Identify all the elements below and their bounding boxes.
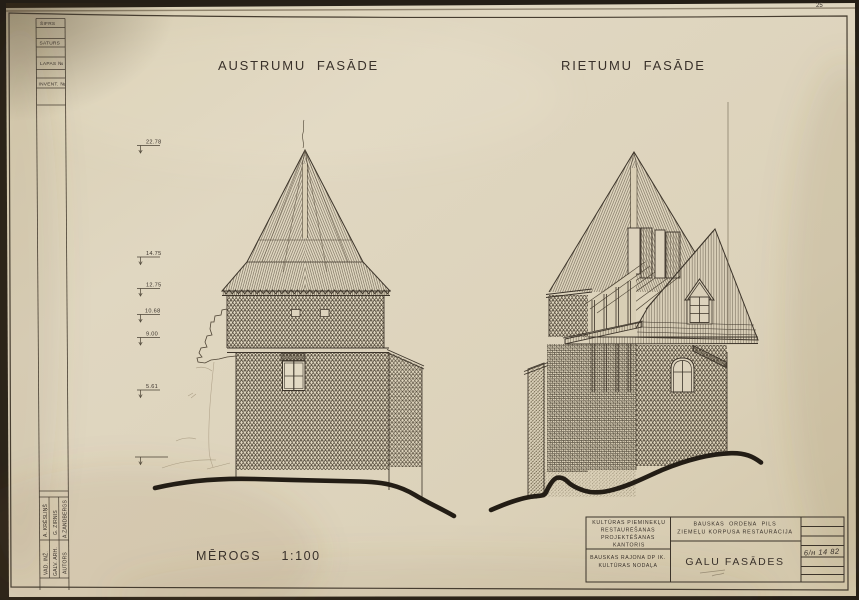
svg-text:KULTŪRAS NODAĻA: KULTŪRAS NODAĻA <box>598 562 657 569</box>
svg-text:ŠIFRS: ŠIFRS <box>40 20 55 27</box>
svg-text:RESTAURĒŠANAS: RESTAURĒŠANAS <box>601 527 656 534</box>
svg-text:BAUSKAS RAJONA DP IK.: BAUSKAS RAJONA DP IK. <box>590 555 666 561</box>
svg-text:AUTORS: AUTORS <box>63 552 69 574</box>
svg-text:VAD. INŽ.: VAD. INŽ. <box>42 551 50 575</box>
svg-text:MĒROGS 1:100: MĒROGS 1:100 <box>196 549 321 563</box>
svg-text:12.75: 12.75 <box>146 283 162 289</box>
svg-text:RIETUMU FASĀDE: RIETUMU FASĀDE <box>561 58 706 73</box>
svg-text:GALV. ARH.: GALV. ARH. <box>53 547 59 576</box>
svg-text:5.61: 5.61 <box>146 384 158 390</box>
svg-text:KANTORIS: KANTORIS <box>613 543 645 549</box>
svg-text:KULTŪRAS PIEMINEKĻU: KULTŪRAS PIEMINEKĻU <box>592 519 665 526</box>
svg-text:AUSTRUMU FASĀDE: AUSTRUMU FASĀDE <box>218 58 379 73</box>
svg-text:G. ZIRNIS: G. ZIRNIS <box>53 510 59 535</box>
svg-text:10.68: 10.68 <box>145 309 161 315</box>
svg-text:14.75: 14.75 <box>146 251 162 257</box>
svg-text:LAPAS №: LAPAS № <box>40 61 63 67</box>
svg-text:A.ZANDBERGS: A.ZANDBERGS <box>62 499 68 538</box>
svg-text:25: 25 <box>816 3 823 9</box>
svg-text:GALU FASĀDES: GALU FASĀDES <box>685 556 784 568</box>
svg-text:ZIEMEĻU KORPUSA RESTAURĀCIJA: ZIEMEĻU KORPUSA RESTAURĀCIJA <box>677 529 792 536</box>
svg-text:INVENT. №: INVENT. № <box>39 82 66 88</box>
svg-text:BAUSKAS ORDEŅA PILS: BAUSKAS ORDEŅA PILS <box>693 522 776 528</box>
svg-text:SATURS: SATURS <box>40 41 61 47</box>
svg-text:9.00: 9.00 <box>146 332 158 338</box>
svg-text:PROJEKTĒŠANAS: PROJEKTĒŠANAS <box>601 534 655 541</box>
svg-text:A. KRĒSLIŅŠ: A. KRĒSLIŅŠ <box>42 503 49 537</box>
svg-text:22.78: 22.78 <box>146 140 162 146</box>
svg-text:6/н 14 82: 6/н 14 82 <box>804 547 840 558</box>
